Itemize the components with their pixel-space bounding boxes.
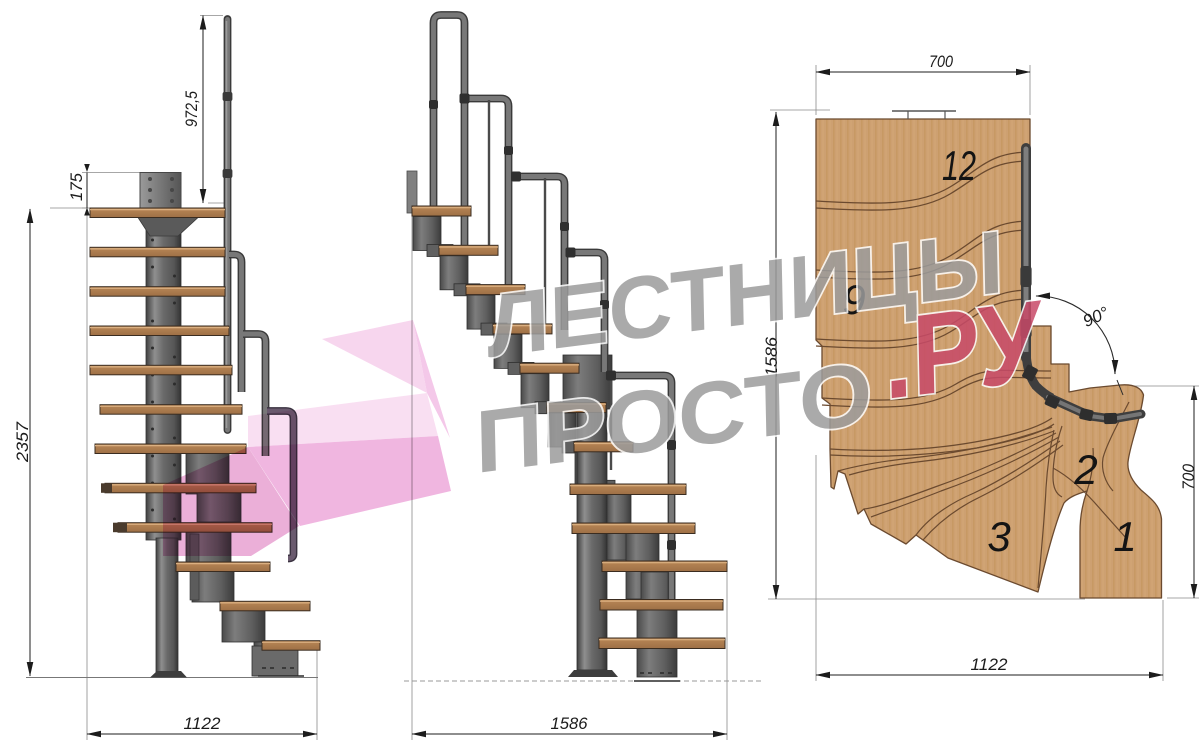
svg-text:1122: 1122 xyxy=(971,655,1009,674)
svg-text:.РУ: .РУ xyxy=(883,277,1044,424)
svg-text:972,5: 972,5 xyxy=(182,91,201,127)
svg-text:2357: 2357 xyxy=(13,421,32,463)
svg-text:1: 1 xyxy=(1113,513,1136,560)
svg-text:1586: 1586 xyxy=(551,714,589,733)
svg-text:1122: 1122 xyxy=(184,714,222,733)
svg-text:3: 3 xyxy=(987,513,1010,560)
svg-text:700: 700 xyxy=(929,52,953,71)
svg-text:12: 12 xyxy=(942,142,976,189)
svg-text:2: 2 xyxy=(1073,446,1097,493)
svg-text:700: 700 xyxy=(1179,464,1198,490)
svg-text:175: 175 xyxy=(67,172,86,201)
